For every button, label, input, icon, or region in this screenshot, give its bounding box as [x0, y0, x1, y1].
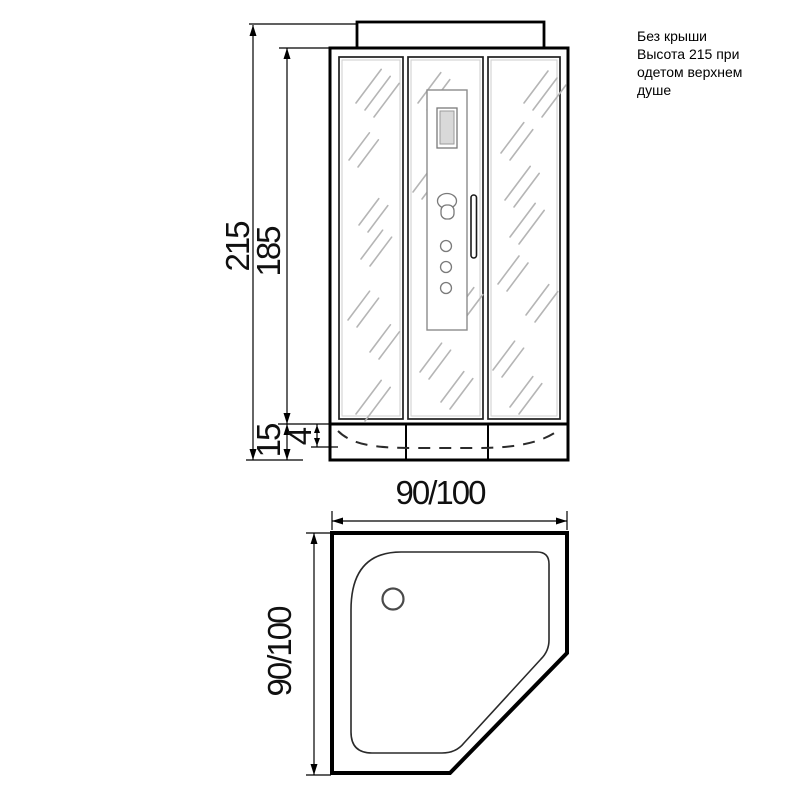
display-screen: [440, 111, 454, 144]
top-view: [332, 533, 567, 773]
glass-panel-left: [339, 57, 403, 419]
control-panel: [427, 90, 467, 330]
front-view: [330, 22, 568, 460]
shower-cabin-diagram: 215 185 15 4 90/100 90/100: [0, 0, 800, 800]
door-handle: [471, 195, 477, 258]
dim-label-glass-height: 185: [250, 227, 287, 277]
shower-head-stem: [441, 205, 454, 219]
control-knob-3: [441, 283, 452, 294]
control-knob-2: [441, 262, 452, 273]
dim-label-depth: 90/100: [261, 606, 298, 697]
drain-hole: [383, 589, 404, 610]
tray-front: [330, 424, 568, 460]
shower-cabin-drawing-page: 215 185 15 4 90/100 90/100 Без крыши Выс…: [0, 0, 800, 800]
roof-cap: [357, 22, 544, 48]
dim-label-width: 90/100: [396, 474, 487, 511]
control-knob-1: [441, 241, 452, 252]
annotation-note: Без крыши Высота 215 при одетом верхнем …: [637, 27, 787, 99]
dim-label-tray-rim: 4: [281, 427, 318, 445]
tray-inner-rim: [351, 552, 549, 753]
